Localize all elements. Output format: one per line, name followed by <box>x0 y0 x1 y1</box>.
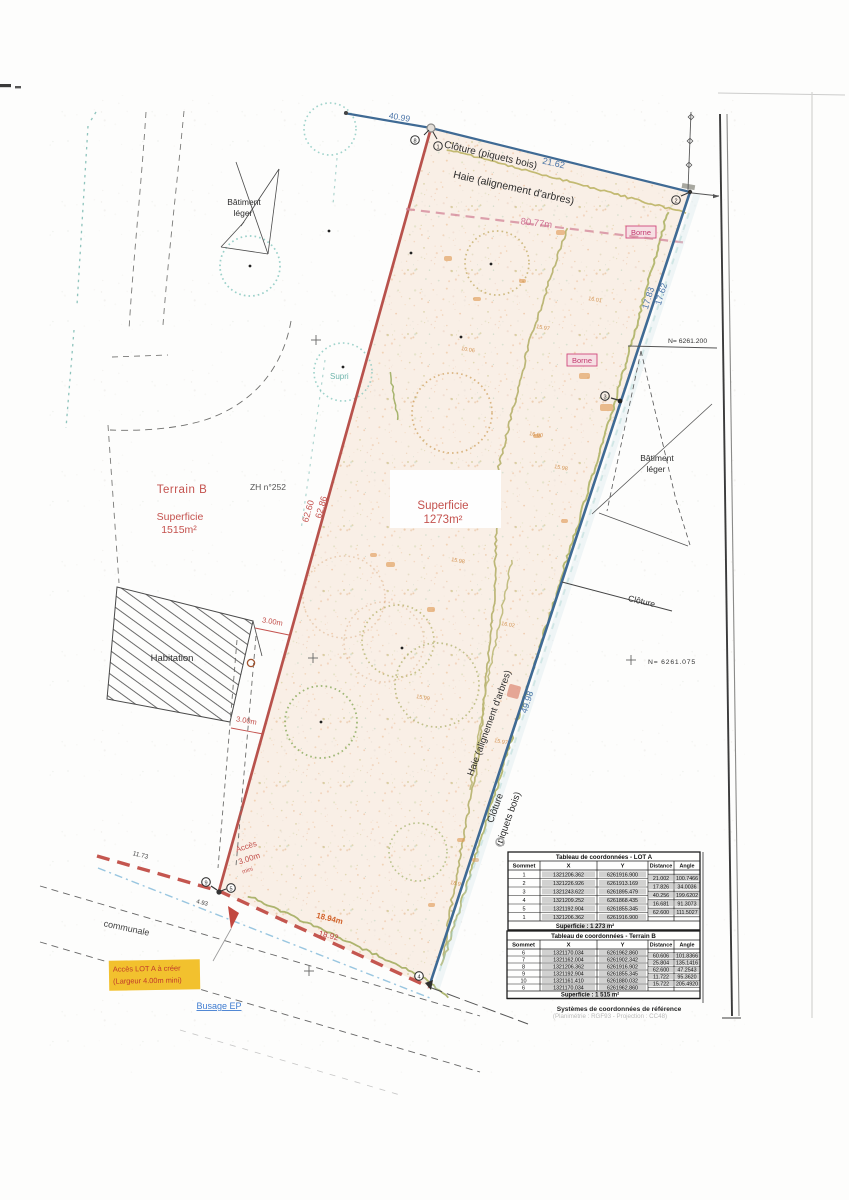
svg-text:3: 3 <box>603 395 606 401</box>
svg-text:6261916.902: 6261916.902 <box>607 965 638 971</box>
svg-text:6261855.345: 6261855.345 <box>607 907 638 913</box>
svg-text:100.7466: 100.7466 <box>676 876 698 882</box>
svg-text:N= 6261.075: N= 6261.075 <box>648 659 696 666</box>
svg-text:101.8366: 101.8366 <box>676 954 698 960</box>
svg-text:199.6202: 199.6202 <box>676 893 698 899</box>
svg-text:1321170.034: 1321170.034 <box>553 951 584 957</box>
svg-text:1321162.004: 1321162.004 <box>553 958 584 964</box>
svg-text:47.2543: 47.2543 <box>677 968 696 974</box>
svg-text:1: 1 <box>522 915 525 921</box>
svg-text:Tableau de coordonnées - LOT A: Tableau de coordonnées - LOT A <box>556 854 653 861</box>
svg-text:6261962.860: 6261962.860 <box>607 986 638 992</box>
svg-text:15.722: 15.722 <box>653 982 669 988</box>
svg-text:1321206.362: 1321206.362 <box>553 915 584 921</box>
svg-text:ZH n°252: ZH n°252 <box>250 482 286 492</box>
svg-text:1321243.622: 1321243.622 <box>553 890 584 896</box>
svg-text:léger: léger <box>647 464 666 474</box>
svg-text:62.600: 62.600 <box>653 968 669 974</box>
svg-text:11.722: 11.722 <box>653 975 669 981</box>
svg-text:Angle: Angle <box>680 943 695 949</box>
svg-text:40.256: 40.256 <box>653 893 669 899</box>
svg-text:6261916.900: 6261916.900 <box>607 915 638 921</box>
svg-text:1321209.252: 1321209.252 <box>553 898 584 904</box>
svg-text:Bâtiment: Bâtiment <box>227 197 261 207</box>
svg-text:4: 4 <box>417 975 420 981</box>
svg-text:3: 3 <box>522 890 525 896</box>
svg-text:6261913.169: 6261913.169 <box>607 881 638 887</box>
svg-text:Superficie: Superficie <box>157 511 204 523</box>
svg-text:6261855.345: 6261855.345 <box>607 972 638 978</box>
svg-text:Angle: Angle <box>680 864 695 870</box>
svg-text:1515m²: 1515m² <box>161 524 197 536</box>
svg-text:6261880.032: 6261880.032 <box>607 979 638 985</box>
svg-text:95.3620: 95.3620 <box>677 975 696 981</box>
svg-text:6: 6 <box>522 986 525 992</box>
svg-text:6261902.342: 6261902.342 <box>607 958 638 964</box>
svg-text:Busage EP: Busage EP <box>196 1001 241 1011</box>
svg-text:léger: léger <box>234 208 253 218</box>
svg-text:111.5027: 111.5027 <box>676 910 697 916</box>
svg-text:5: 5 <box>522 907 525 913</box>
svg-text:Y: Y <box>621 943 625 949</box>
svg-text:1321192.904: 1321192.904 <box>553 972 584 978</box>
svg-text:6: 6 <box>522 951 525 957</box>
svg-text:5: 5 <box>229 887 232 893</box>
svg-text:Tableau de coordonnées - Terra: Tableau de coordonnées - Terrain B <box>551 933 656 940</box>
svg-text:16.681: 16.681 <box>653 902 669 908</box>
svg-text:Superficie : 1 273 m²: Superficie : 1 273 m² <box>556 923 614 930</box>
svg-text:205.4920: 205.4920 <box>676 982 698 988</box>
svg-text:Sommet: Sommet <box>513 864 536 870</box>
svg-text:Superficie: Superficie <box>417 500 468 512</box>
svg-text:Systèmes de coordonnées de réf: Systèmes de coordonnées de référence <box>557 1006 682 1013</box>
svg-text:2: 2 <box>674 199 677 205</box>
svg-text:1321206.362: 1321206.362 <box>553 965 584 971</box>
svg-text:10: 10 <box>520 979 526 985</box>
svg-text:6261916.900: 6261916.900 <box>607 873 638 879</box>
svg-text:1321226.926: 1321226.926 <box>553 881 584 887</box>
svg-text:9: 9 <box>522 972 525 978</box>
svg-text:6261962.860: 6261962.860 <box>607 951 638 957</box>
svg-text:1: 1 <box>522 873 525 879</box>
svg-text:Y: Y <box>621 864 625 870</box>
svg-text:91.3073: 91.3073 <box>677 902 696 908</box>
svg-text:Supri: Supri <box>330 372 349 381</box>
svg-text:25.804: 25.804 <box>653 961 669 967</box>
svg-text:60.606: 60.606 <box>653 954 669 960</box>
svg-text:N= 6261.200: N= 6261.200 <box>668 338 707 345</box>
svg-text:Sommet: Sommet <box>512 943 535 949</box>
svg-text:6261868.435: 6261868.435 <box>607 898 638 904</box>
svg-text:8: 8 <box>522 965 525 971</box>
svg-text:X: X <box>567 943 571 949</box>
svg-text:9: 9 <box>204 881 207 887</box>
svg-text:(Largeur 4.00m mini): (Largeur 4.00m mini) <box>113 976 182 986</box>
svg-text:4: 4 <box>522 898 525 904</box>
svg-text:34.0036: 34.0036 <box>677 885 696 891</box>
svg-text:1273m²: 1273m² <box>424 514 463 526</box>
svg-text:Habitation: Habitation <box>151 653 194 664</box>
svg-text:Superficie : 1 515 m²: Superficie : 1 515 m² <box>561 992 619 999</box>
svg-text:(Planimétrie : RGF93 - Project: (Planimétrie : RGF93 - Projection : CC48… <box>553 1013 667 1020</box>
svg-text:1321206.362: 1321206.362 <box>553 873 584 879</box>
svg-text:1321161.410: 1321161.410 <box>553 979 584 985</box>
svg-text:Distance: Distance <box>650 864 672 870</box>
svg-text:1321170.034: 1321170.034 <box>553 986 584 992</box>
svg-text:6261895.479: 6261895.479 <box>607 890 638 896</box>
svg-text:Terrain B: Terrain B <box>157 484 208 496</box>
svg-text:135.1416: 135.1416 <box>676 961 698 967</box>
svg-text:1321192.904: 1321192.904 <box>553 907 584 913</box>
svg-text:2: 2 <box>522 881 525 887</box>
svg-text:7: 7 <box>522 958 525 964</box>
svg-text:21.002: 21.002 <box>653 876 669 882</box>
svg-text:1: 1 <box>436 145 439 151</box>
svg-text:8: 8 <box>413 139 416 145</box>
svg-text:17.826: 17.826 <box>653 885 669 891</box>
svg-text:62.600: 62.600 <box>653 910 669 916</box>
svg-text:Distance: Distance <box>650 943 672 949</box>
svg-text:Borne: Borne <box>572 356 592 365</box>
svg-text:X: X <box>567 864 571 870</box>
svg-text:Accès LOT A à créer: Accès LOT A à créer <box>113 964 181 974</box>
